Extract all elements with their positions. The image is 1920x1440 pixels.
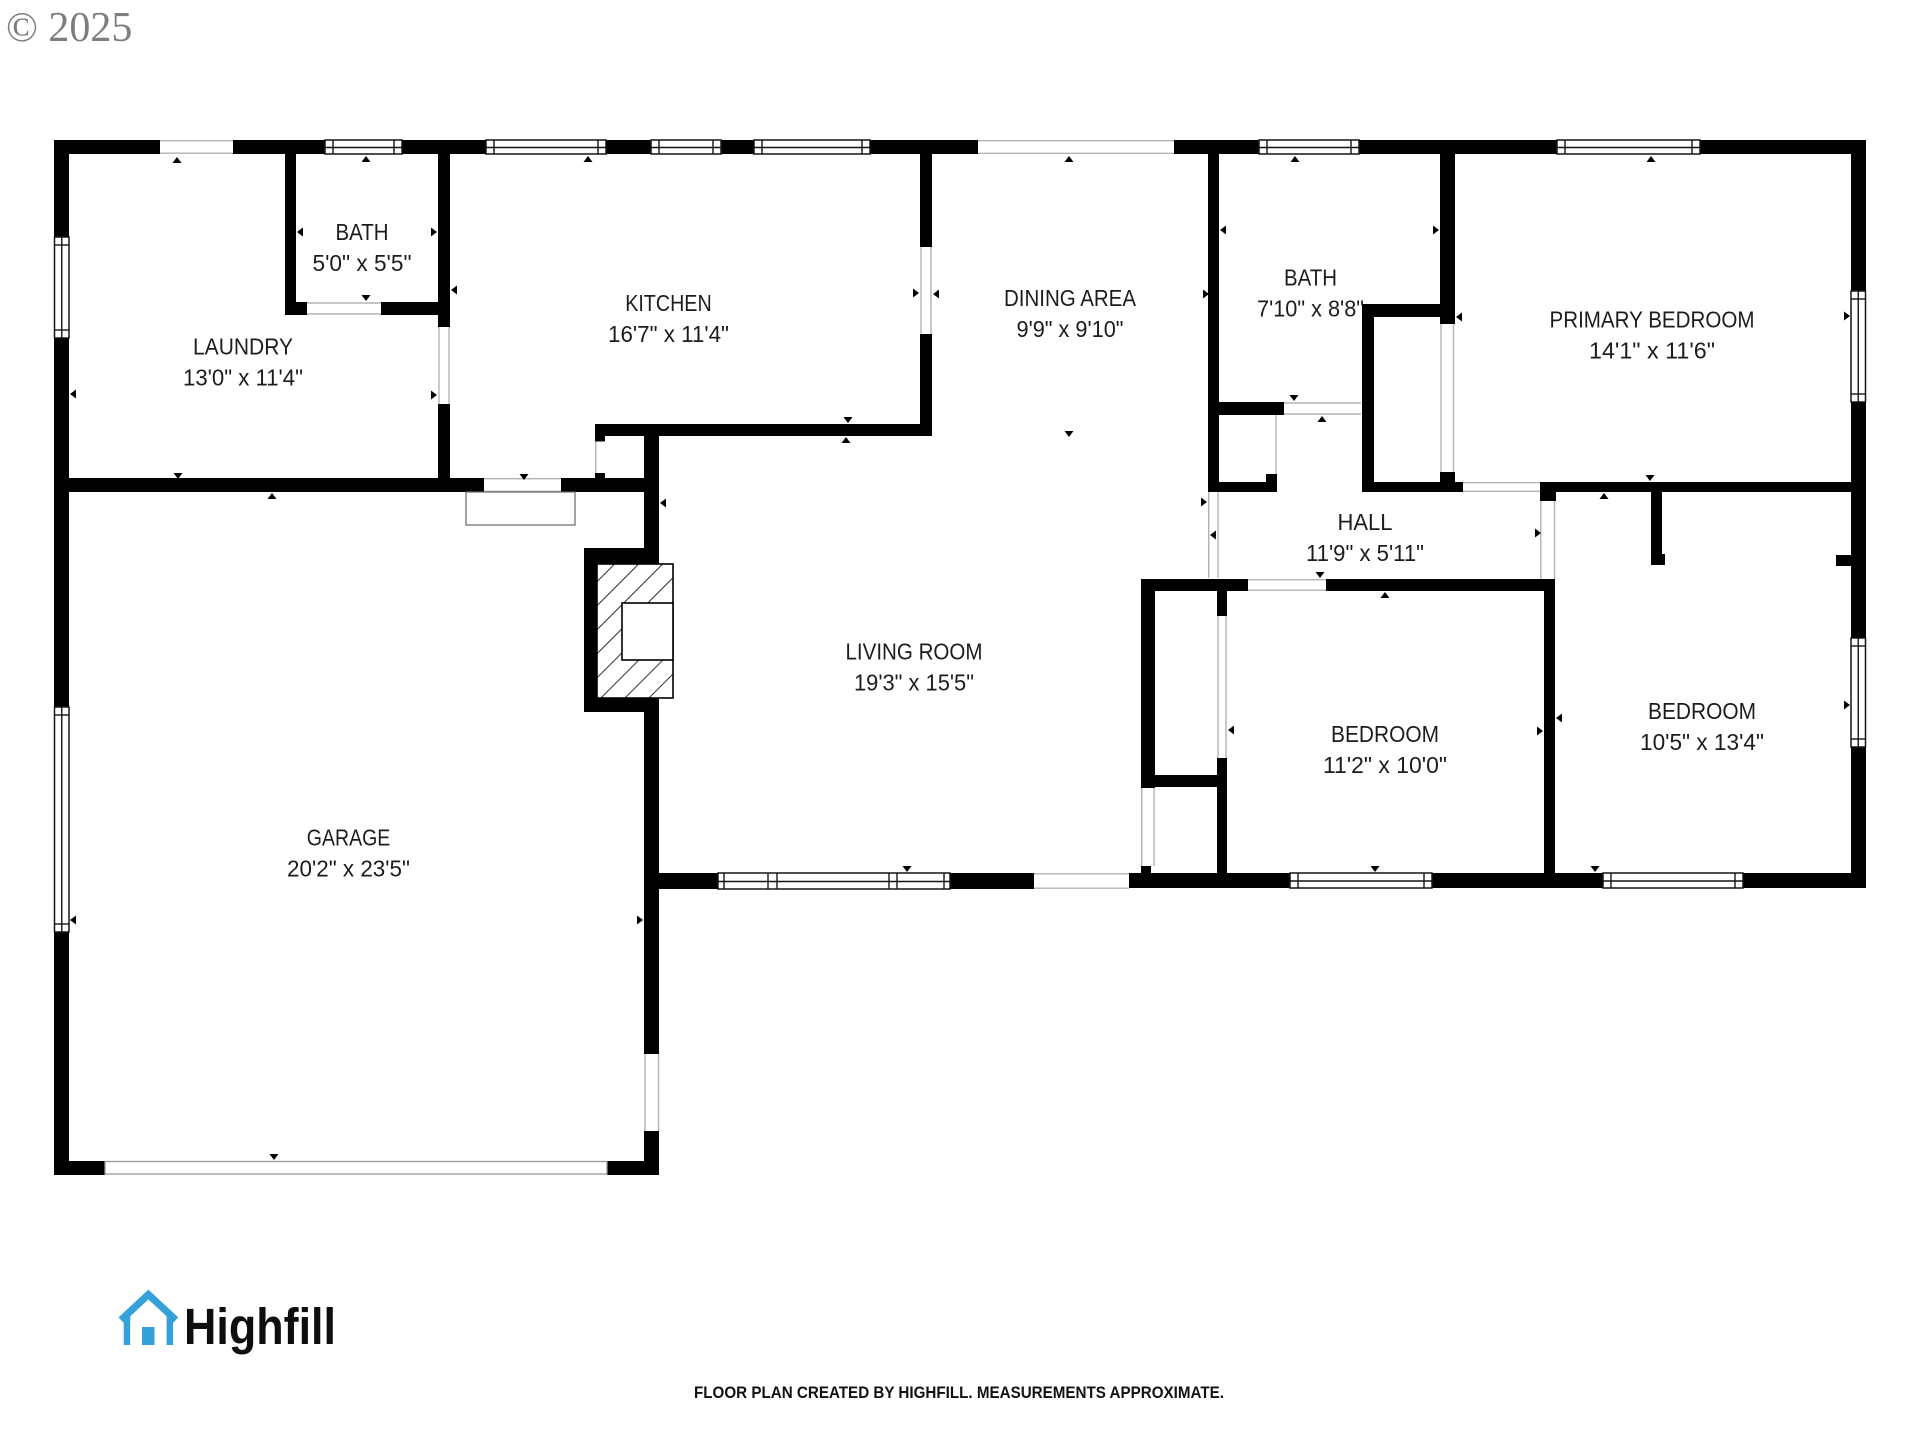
svg-text:BEDROOM: BEDROOM	[1648, 698, 1756, 724]
svg-text:16'7" x 11'4": 16'7" x 11'4"	[608, 321, 729, 347]
svg-text:BATH: BATH	[336, 219, 389, 245]
svg-text:FLOOR PLAN CREATED BY HIGHFILL: FLOOR PLAN CREATED BY HIGHFILL. MEASUREM…	[694, 1383, 1224, 1402]
svg-text:7'10" x 8'8": 7'10" x 8'8"	[1257, 295, 1364, 321]
svg-text:11'2" x 10'0": 11'2" x 10'0"	[1323, 752, 1447, 778]
svg-text:20'2" x 23'5": 20'2" x 23'5"	[287, 855, 410, 881]
svg-text:10'5" x 13'4": 10'5" x 13'4"	[1640, 729, 1764, 755]
svg-text:PRIMARY BEDROOM: PRIMARY BEDROOM	[1550, 307, 1755, 333]
svg-text:© 2025: © 2025	[6, 5, 132, 51]
svg-text:5'0" x 5'5": 5'0" x 5'5"	[313, 250, 412, 276]
svg-text:BEDROOM: BEDROOM	[1331, 721, 1439, 747]
svg-text:11'9" x 5'11": 11'9" x 5'11"	[1306, 540, 1424, 566]
svg-text:13'0" x 11'4": 13'0" x 11'4"	[183, 364, 303, 390]
svg-text:LAUNDRY: LAUNDRY	[193, 334, 293, 360]
svg-text:HALL: HALL	[1338, 509, 1393, 535]
svg-text:9'9" x 9'10": 9'9" x 9'10"	[1017, 316, 1124, 342]
svg-text:14'1" x 11'6": 14'1" x 11'6"	[1589, 337, 1715, 363]
svg-text:KITCHEN: KITCHEN	[625, 290, 712, 316]
svg-text:BATH: BATH	[1284, 265, 1337, 291]
svg-text:19'3" x 15'5": 19'3" x 15'5"	[854, 669, 974, 695]
svg-text:GARAGE: GARAGE	[307, 825, 391, 851]
svg-text:Highfill: Highfill	[184, 1298, 336, 1355]
svg-text:LIVING ROOM: LIVING ROOM	[846, 639, 983, 665]
svg-text:DINING AREA: DINING AREA	[1004, 285, 1136, 311]
